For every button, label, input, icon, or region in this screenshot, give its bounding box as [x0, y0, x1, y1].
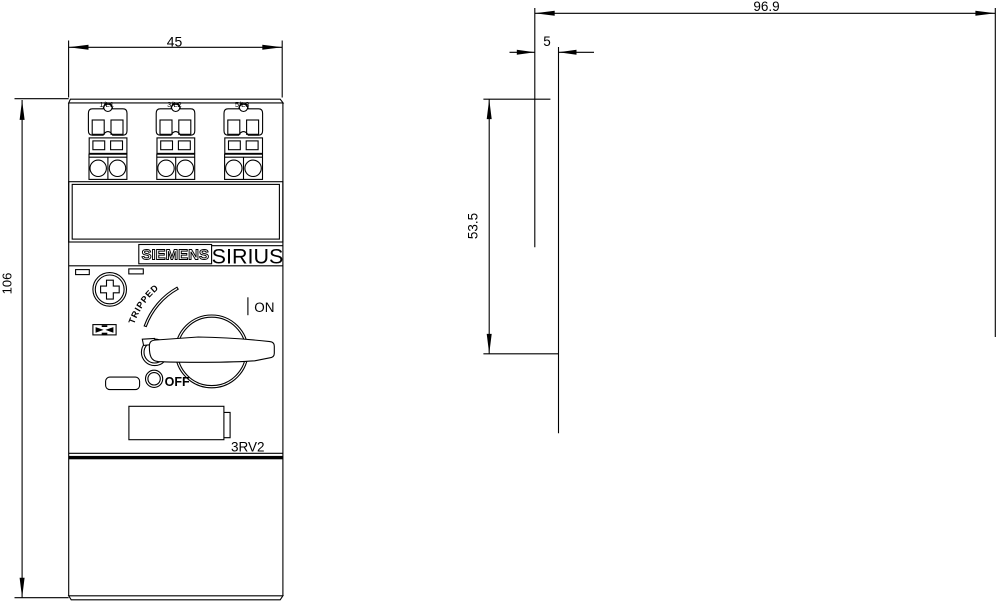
svg-text:3RV2: 3RV2	[231, 439, 265, 454]
svg-text:106: 106	[0, 273, 15, 295]
svg-text:SIRIUS: SIRIUS	[212, 245, 284, 269]
svg-text:OFF: OFF	[165, 375, 190, 389]
svg-text:5: 5	[543, 34, 551, 49]
svg-text:ON: ON	[254, 300, 274, 315]
svg-text:53.5: 53.5	[466, 213, 481, 239]
svg-text:96.9: 96.9	[753, 0, 779, 14]
svg-text:SIEMENS: SIEMENS	[141, 246, 209, 263]
